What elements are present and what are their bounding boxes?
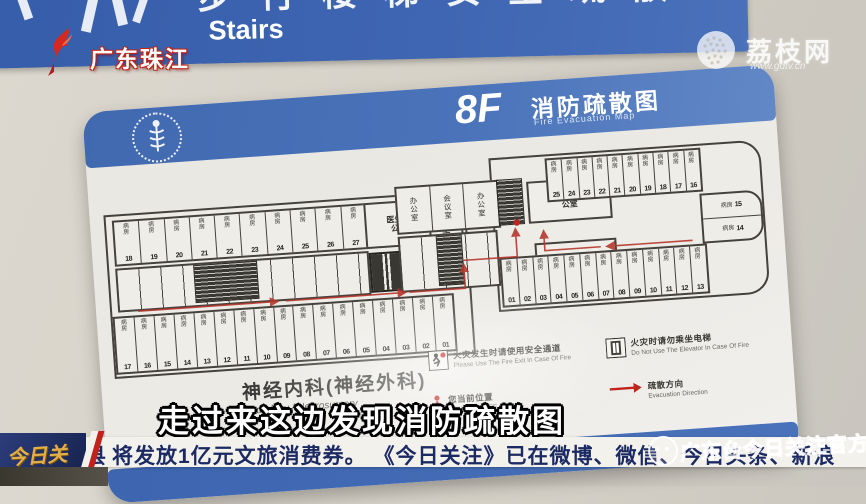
lychee-icon (694, 28, 738, 72)
legend-evac-direction: 疏散方向Evacuation Direction (608, 371, 769, 403)
site-logo: 荔枝网 www.gdtv.cn (694, 28, 864, 74)
floor-number: 8F (453, 85, 503, 133)
photo-shadow-area (0, 467, 108, 486)
evac-direction-arrow-icon (608, 380, 643, 400)
stairs-pictogram (132, 0, 150, 23)
channel-logo: 广东珠江 (38, 26, 228, 72)
stairs-pictogram (109, 0, 128, 26)
channel-flame-icon (38, 26, 90, 76)
arrow-pictogram (15, 0, 33, 20)
fire-exit-icon (428, 350, 450, 376)
no-elevator-icon (605, 337, 627, 363)
program-logo: 今日关注 (0, 433, 86, 471)
subtitle-caption: 走过来这边发现消防疏散图 (158, 396, 566, 441)
hospital-logo-icon (130, 111, 183, 164)
watermark-mascot-icon (647, 435, 679, 467)
